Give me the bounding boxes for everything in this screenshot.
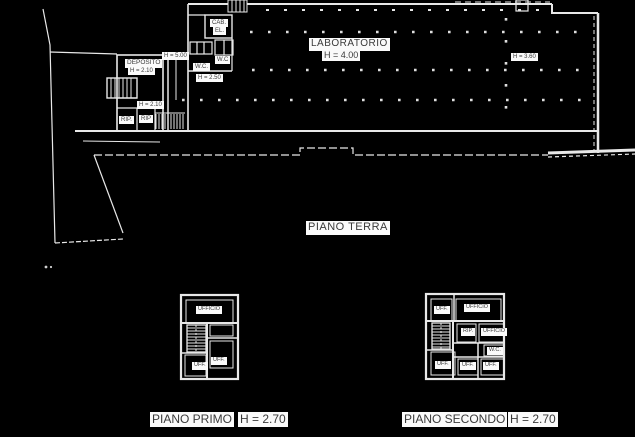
label-secondo-ufficio-top: UFFICIO (464, 304, 490, 312)
label-height-360: H = 3.60 (511, 53, 538, 61)
column-grid-dots (182, 18, 594, 128)
label-primo-uff-right: UFF. (211, 357, 227, 365)
label-primo-ufficio: UFFICIO (196, 306, 222, 314)
ground-floor-outline (75, 0, 598, 153)
fence-line (94, 148, 635, 157)
label-secondo-ufficio-mid: UFFICIO (481, 328, 507, 336)
floor-plan-drawing (0, 0, 635, 437)
label-secondo-uff-topleft: UFF. (434, 306, 450, 314)
floor-plan-sheet: LABORATORIO H = 4.00 H = 3.60 DEPOSITO H… (0, 0, 635, 437)
label-secondo-rip: RIP. (461, 328, 475, 336)
label-rip-left: RIP. (119, 116, 134, 124)
label-rip-right: RIP (139, 115, 153, 123)
label-wc-lower: W.C. (193, 63, 210, 71)
label-el: EL. (213, 27, 226, 35)
label-secondo-uff-br: UFF. (483, 362, 499, 370)
label-height-250: H = 2.50 (196, 74, 223, 82)
label-laboratorio-height: H = 4.00 (322, 50, 360, 61)
label-secondo-uff-bl: UFF. (435, 361, 451, 369)
label-deposito-height: H = 2.10 (128, 67, 155, 75)
caption-piano-primo-height: H = 2.70 (238, 412, 288, 427)
label-secondo-uff-bm: UFF. (460, 362, 476, 370)
label-wc-upper: W.C (215, 56, 230, 64)
caption-piano-primo: PIANO PRIMO (150, 412, 234, 427)
label-height-210: H = 2.10 (137, 101, 164, 109)
label-primo-uff-left: UFF. (192, 362, 208, 370)
caption-piano-secondo-height: H = 2.70 (508, 412, 558, 427)
caption-piano-secondo: PIANO SECONDO (402, 412, 507, 427)
label-piano-terra: PIANO TERRA (306, 221, 390, 235)
label-secondo-wc: W.C. (487, 347, 503, 355)
top-stair-block (228, 0, 247, 12)
deposito-stair (107, 78, 137, 98)
site-boundary (43, 9, 123, 268)
label-laboratorio: LABORATORIO (309, 38, 390, 51)
label-height-500: H = 5.00 (162, 52, 189, 60)
